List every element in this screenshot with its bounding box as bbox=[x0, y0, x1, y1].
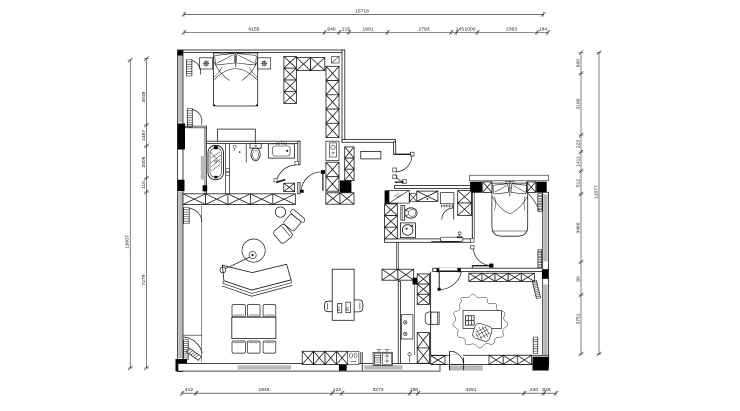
svg-text:90: 90 bbox=[576, 276, 582, 282]
svg-text:184: 184 bbox=[539, 26, 547, 32]
svg-text:4251: 4251 bbox=[466, 387, 477, 393]
svg-text:2793: 2793 bbox=[419, 26, 430, 32]
svg-text:150: 150 bbox=[410, 387, 418, 393]
svg-text:223: 223 bbox=[576, 140, 582, 148]
svg-text:1487: 1487 bbox=[141, 130, 147, 141]
svg-text:110: 110 bbox=[141, 181, 147, 189]
svg-text:3180: 3180 bbox=[576, 98, 582, 109]
svg-text:2006: 2006 bbox=[141, 156, 147, 167]
svg-text:B2: B2 bbox=[346, 307, 350, 311]
svg-text:240: 240 bbox=[530, 387, 538, 393]
svg-text:1411: 1411 bbox=[576, 156, 582, 167]
svg-text:122: 122 bbox=[333, 387, 341, 393]
svg-text:7279: 7279 bbox=[141, 274, 147, 285]
svg-text:145: 145 bbox=[456, 26, 464, 32]
svg-text:600: 600 bbox=[576, 59, 582, 67]
svg-text:640: 640 bbox=[327, 26, 335, 32]
svg-text:3751: 3751 bbox=[576, 313, 582, 324]
svg-text:6155: 6155 bbox=[249, 26, 260, 32]
svg-text:1901: 1901 bbox=[363, 26, 374, 32]
svg-text:1000: 1000 bbox=[465, 26, 476, 32]
svg-text:B1: B1 bbox=[337, 307, 341, 311]
svg-text:512: 512 bbox=[576, 179, 582, 187]
svg-text:1946: 1946 bbox=[259, 387, 270, 393]
svg-text:2363: 2363 bbox=[506, 26, 517, 32]
svg-text:412: 412 bbox=[185, 387, 193, 393]
svg-text:12077: 12077 bbox=[594, 185, 600, 199]
svg-text:3049: 3049 bbox=[141, 91, 147, 102]
svg-text:13007: 13007 bbox=[125, 235, 131, 249]
svg-text:3460: 3460 bbox=[576, 222, 582, 233]
svg-text:826: 826 bbox=[542, 387, 550, 393]
svg-text:15718: 15718 bbox=[355, 8, 369, 14]
svg-text:3273: 3273 bbox=[373, 387, 384, 393]
svg-text:215: 215 bbox=[342, 26, 350, 32]
